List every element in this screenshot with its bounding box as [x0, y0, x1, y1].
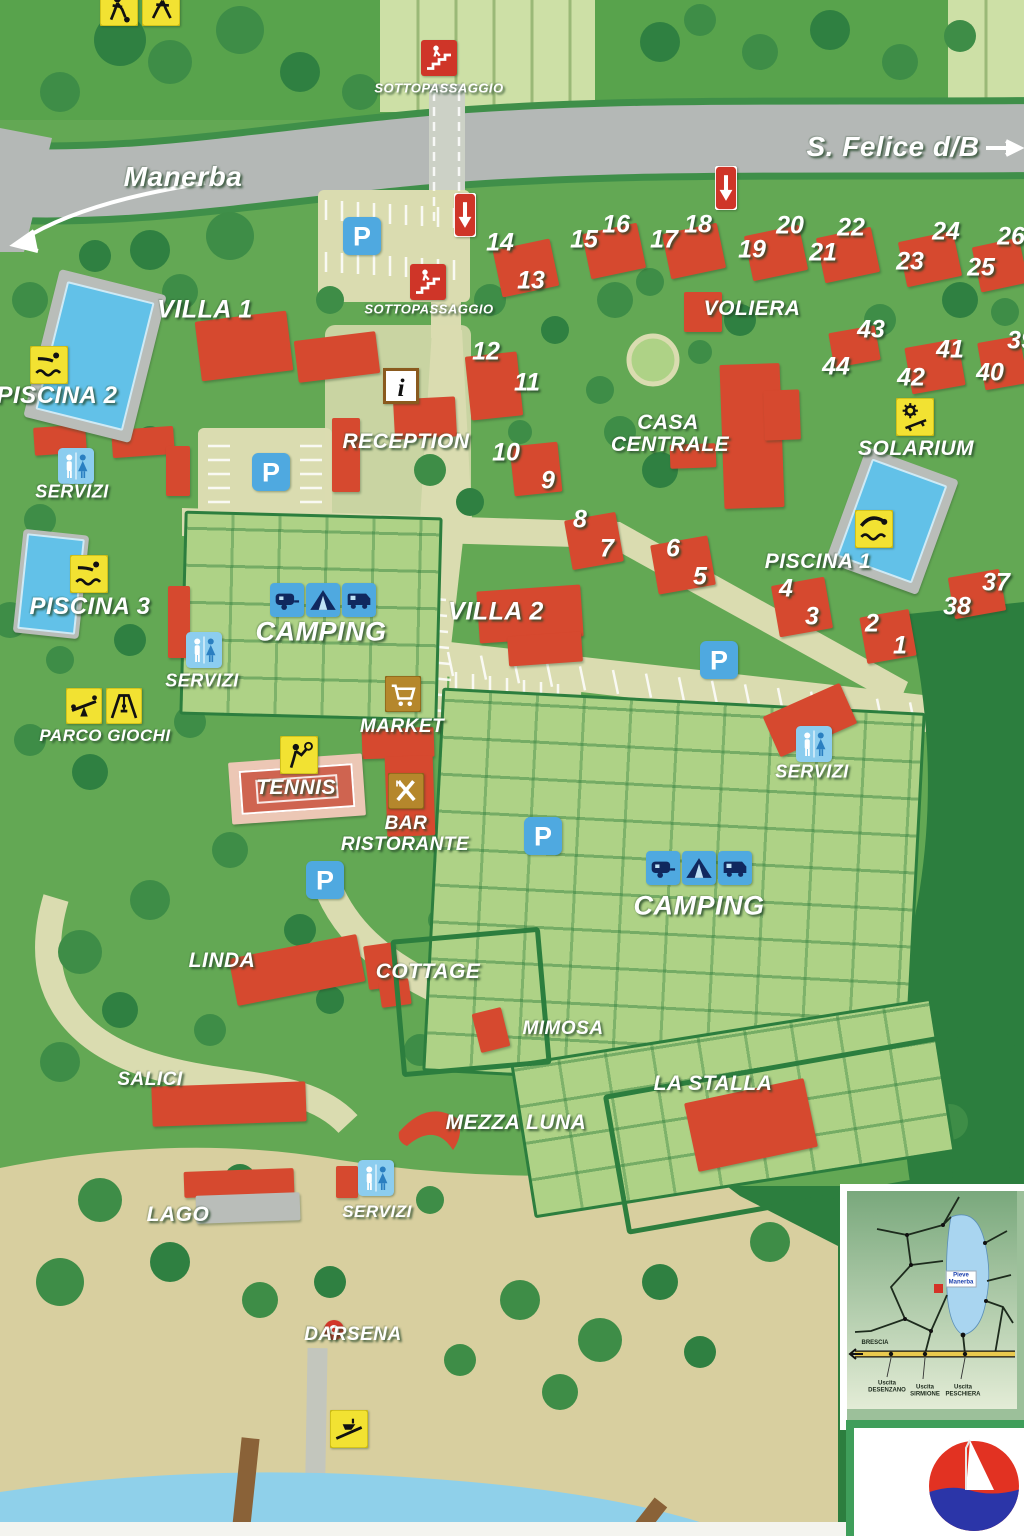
- bungalow-number-4: 4: [779, 575, 793, 604]
- bungalow-number-42: 42: [897, 364, 925, 393]
- bungalow-number-23: 23: [896, 248, 924, 277]
- runner-icon: [142, 0, 180, 26]
- bungalow-number-22: 22: [837, 214, 865, 243]
- place-label-sottopassaggio-2: SOTTOPASSAGGIO: [364, 302, 493, 317]
- bungalow-number-11: 11: [514, 369, 540, 398]
- bungalow-number-1: 1: [893, 632, 907, 661]
- svg-text:P: P: [353, 222, 371, 252]
- waterslide-icon: [70, 555, 108, 593]
- place-label-servizi-3: SERVIZI: [775, 762, 849, 783]
- bungalow-number-12: 12: [472, 338, 500, 367]
- bungalow-number-13: 13: [517, 267, 545, 296]
- bungalow-number-18: 18: [684, 211, 712, 240]
- inset-label-brescia: BRESCIA: [861, 1340, 888, 1347]
- parking-icon: P: [252, 450, 290, 494]
- bungalow-number-39: 39: [1007, 327, 1024, 356]
- sailboat-logo-graphic: [854, 1428, 1024, 1536]
- inset-label-uscita-peschiera: Uscita PESCHIERA: [945, 1385, 980, 1398]
- bungalow-number-40: 40: [976, 359, 1004, 388]
- camper-icon: [718, 851, 752, 885]
- inset-marker-label: Pieve Manerba: [946, 1271, 977, 1288]
- bungalow-number-7: 7: [600, 535, 614, 564]
- swing-icon: [106, 688, 142, 724]
- villa1-b: [294, 331, 381, 383]
- bungalow-number-14: 14: [486, 229, 514, 258]
- bungalow-number-41: 41: [936, 336, 964, 365]
- toilet-icon: [186, 632, 222, 668]
- place-label-la-stalla: LA STALLA: [654, 1072, 773, 1096]
- diving-icon: [855, 510, 893, 548]
- place-label-piscina-3: PISCINA 3: [30, 593, 151, 621]
- bungalow-number-38: 38: [943, 593, 971, 622]
- place-label-servizi: SERVIZI: [35, 482, 109, 503]
- svg-text:P: P: [316, 866, 334, 896]
- place-label-piscina-1: PISCINA 1: [765, 550, 871, 574]
- place-label-servizi-2: SERVIZI: [165, 671, 239, 692]
- place-label-solarium: SOLARIUM: [858, 437, 974, 461]
- servizi-bottom-bldg: [336, 1166, 358, 1198]
- place-label-sottopassaggio: SOTTOPASSAGGIO: [374, 81, 503, 96]
- logo-water: [924, 1488, 1024, 1536]
- tent-icon: [306, 583, 340, 617]
- bungalow-number-17: 17: [650, 226, 678, 255]
- place-label-linda: LINDA: [189, 949, 256, 973]
- svg-text:i: i: [397, 373, 404, 402]
- place-label-parco-giochi: PARCO GIOCHI: [39, 726, 170, 746]
- parking-icon: P: [343, 214, 381, 258]
- toilet-icon: [796, 726, 832, 762]
- seesaw-icon: [66, 688, 102, 724]
- inset-label-uscita-sirmione: Uscita SIRMIONE: [910, 1385, 940, 1398]
- place-label-casa: CASA: [637, 411, 699, 435]
- place-label-darsena: DARSENA: [304, 1324, 401, 1346]
- casa-centrale-b: [763, 389, 801, 440]
- place-label-camping-2: CAMPING: [634, 891, 765, 922]
- svg-text:P: P: [534, 822, 552, 852]
- place-label-bar: BAR: [385, 813, 428, 835]
- svg-text:P: P: [262, 458, 280, 488]
- oneway-icon: [454, 193, 476, 237]
- parking-icon: P: [306, 858, 344, 902]
- bungalow-number-8: 8: [573, 506, 587, 535]
- inset-roadmap: Pieve Manerba BRESCIAUscita DESENZANOUsc…: [840, 1184, 1024, 1430]
- underpass-icon: [421, 40, 457, 76]
- boat-icon: [330, 1410, 368, 1448]
- caravan-icon: [270, 583, 304, 617]
- place-label-ristorante: RISTORANTE: [341, 834, 469, 856]
- parking-icon: P: [700, 638, 738, 682]
- toilet-icon: [58, 448, 94, 484]
- info-icon: i: [383, 368, 419, 404]
- villa2-b: [507, 631, 583, 666]
- place-label-tennis: TENNIS: [256, 776, 336, 800]
- place-label-market: MARKET: [360, 716, 444, 738]
- place-label-servizi-4: SERVIZI: [342, 1202, 412, 1222]
- lago-body: [196, 1192, 301, 1224]
- place-label-mezza-luna: MEZZA LUNA: [446, 1111, 587, 1135]
- camper-icon: [342, 583, 376, 617]
- campsite-resort-map: PPPPPiManerbaS. Felice d/BSOTTOPASSAGGIO…: [0, 0, 1024, 1536]
- sailboat-logo: [846, 1420, 1024, 1536]
- place-label-voliera: VOLIERA: [704, 297, 801, 321]
- small-red: [166, 446, 190, 496]
- bungalow-number-10: 10: [492, 439, 520, 468]
- bungalow-number-26: 26: [997, 223, 1024, 252]
- market-icon: [385, 676, 421, 712]
- bungalow-number-2: 2: [865, 610, 879, 639]
- place-label-camping: CAMPING: [256, 617, 387, 648]
- place-label-reception: RECEPTION: [342, 430, 469, 454]
- place-label-centrale: CENTRALE: [611, 433, 729, 457]
- bar-icon: [388, 773, 424, 809]
- place-label-salici: SALICI: [117, 1069, 182, 1091]
- soccer-icon: [100, 0, 138, 26]
- oneway-icon: [715, 166, 737, 210]
- inset-labels: Pieve Manerba BRESCIAUscita DESENZANOUsc…: [847, 1191, 1024, 1423]
- place-label-lago: LAGO: [147, 1203, 210, 1227]
- place-label-s-felice-d-b: S. Felice d/B: [807, 131, 980, 163]
- underpass-icon: [410, 264, 446, 300]
- tent-icon: [682, 851, 716, 885]
- place-label-manerba: Manerba: [124, 161, 243, 193]
- bungalow-number-25: 25: [967, 254, 995, 283]
- bungalow-number-21: 21: [809, 239, 837, 268]
- parking-icon: P: [524, 814, 562, 858]
- bungalow-number-43: 43: [857, 316, 885, 345]
- map-bottom-margin: [0, 1522, 846, 1536]
- toilet-icon: [358, 1160, 394, 1196]
- svg-text:P: P: [710, 646, 728, 676]
- inset-label-uscita-desenzano: Uscita DESENZANO: [868, 1381, 906, 1394]
- bungalow-number-24: 24: [932, 218, 960, 247]
- bungalow-number-20: 20: [776, 212, 804, 241]
- bungalow-number-44: 44: [822, 353, 850, 382]
- place-label-villa-2: VILLA 2: [448, 598, 544, 627]
- bungalow-number-15: 15: [570, 226, 598, 255]
- bungalow-number-6: 6: [666, 535, 680, 564]
- bungalow-number-19: 19: [738, 236, 766, 265]
- bungalow-number-5: 5: [693, 563, 707, 592]
- caravan-icon: [646, 851, 680, 885]
- tennis-icon: [280, 736, 318, 774]
- place-label-mimosa: MIMOSA: [522, 1018, 603, 1040]
- place-label-piscina-2: PISCINA 2: [0, 382, 117, 410]
- bungalow-number-3: 3: [805, 603, 819, 632]
- place-label-villa-1: VILLA 1: [157, 296, 253, 325]
- bungalow-number-16: 16: [602, 211, 630, 240]
- cottage-plot-outline: [390, 927, 551, 1078]
- waterslide-icon: [30, 346, 68, 384]
- bungalow-number-9: 9: [541, 467, 555, 496]
- solarium-icon: [896, 398, 934, 436]
- place-label-cottage: COTTAGE: [376, 960, 481, 984]
- bungalow-number-37: 37: [982, 569, 1010, 598]
